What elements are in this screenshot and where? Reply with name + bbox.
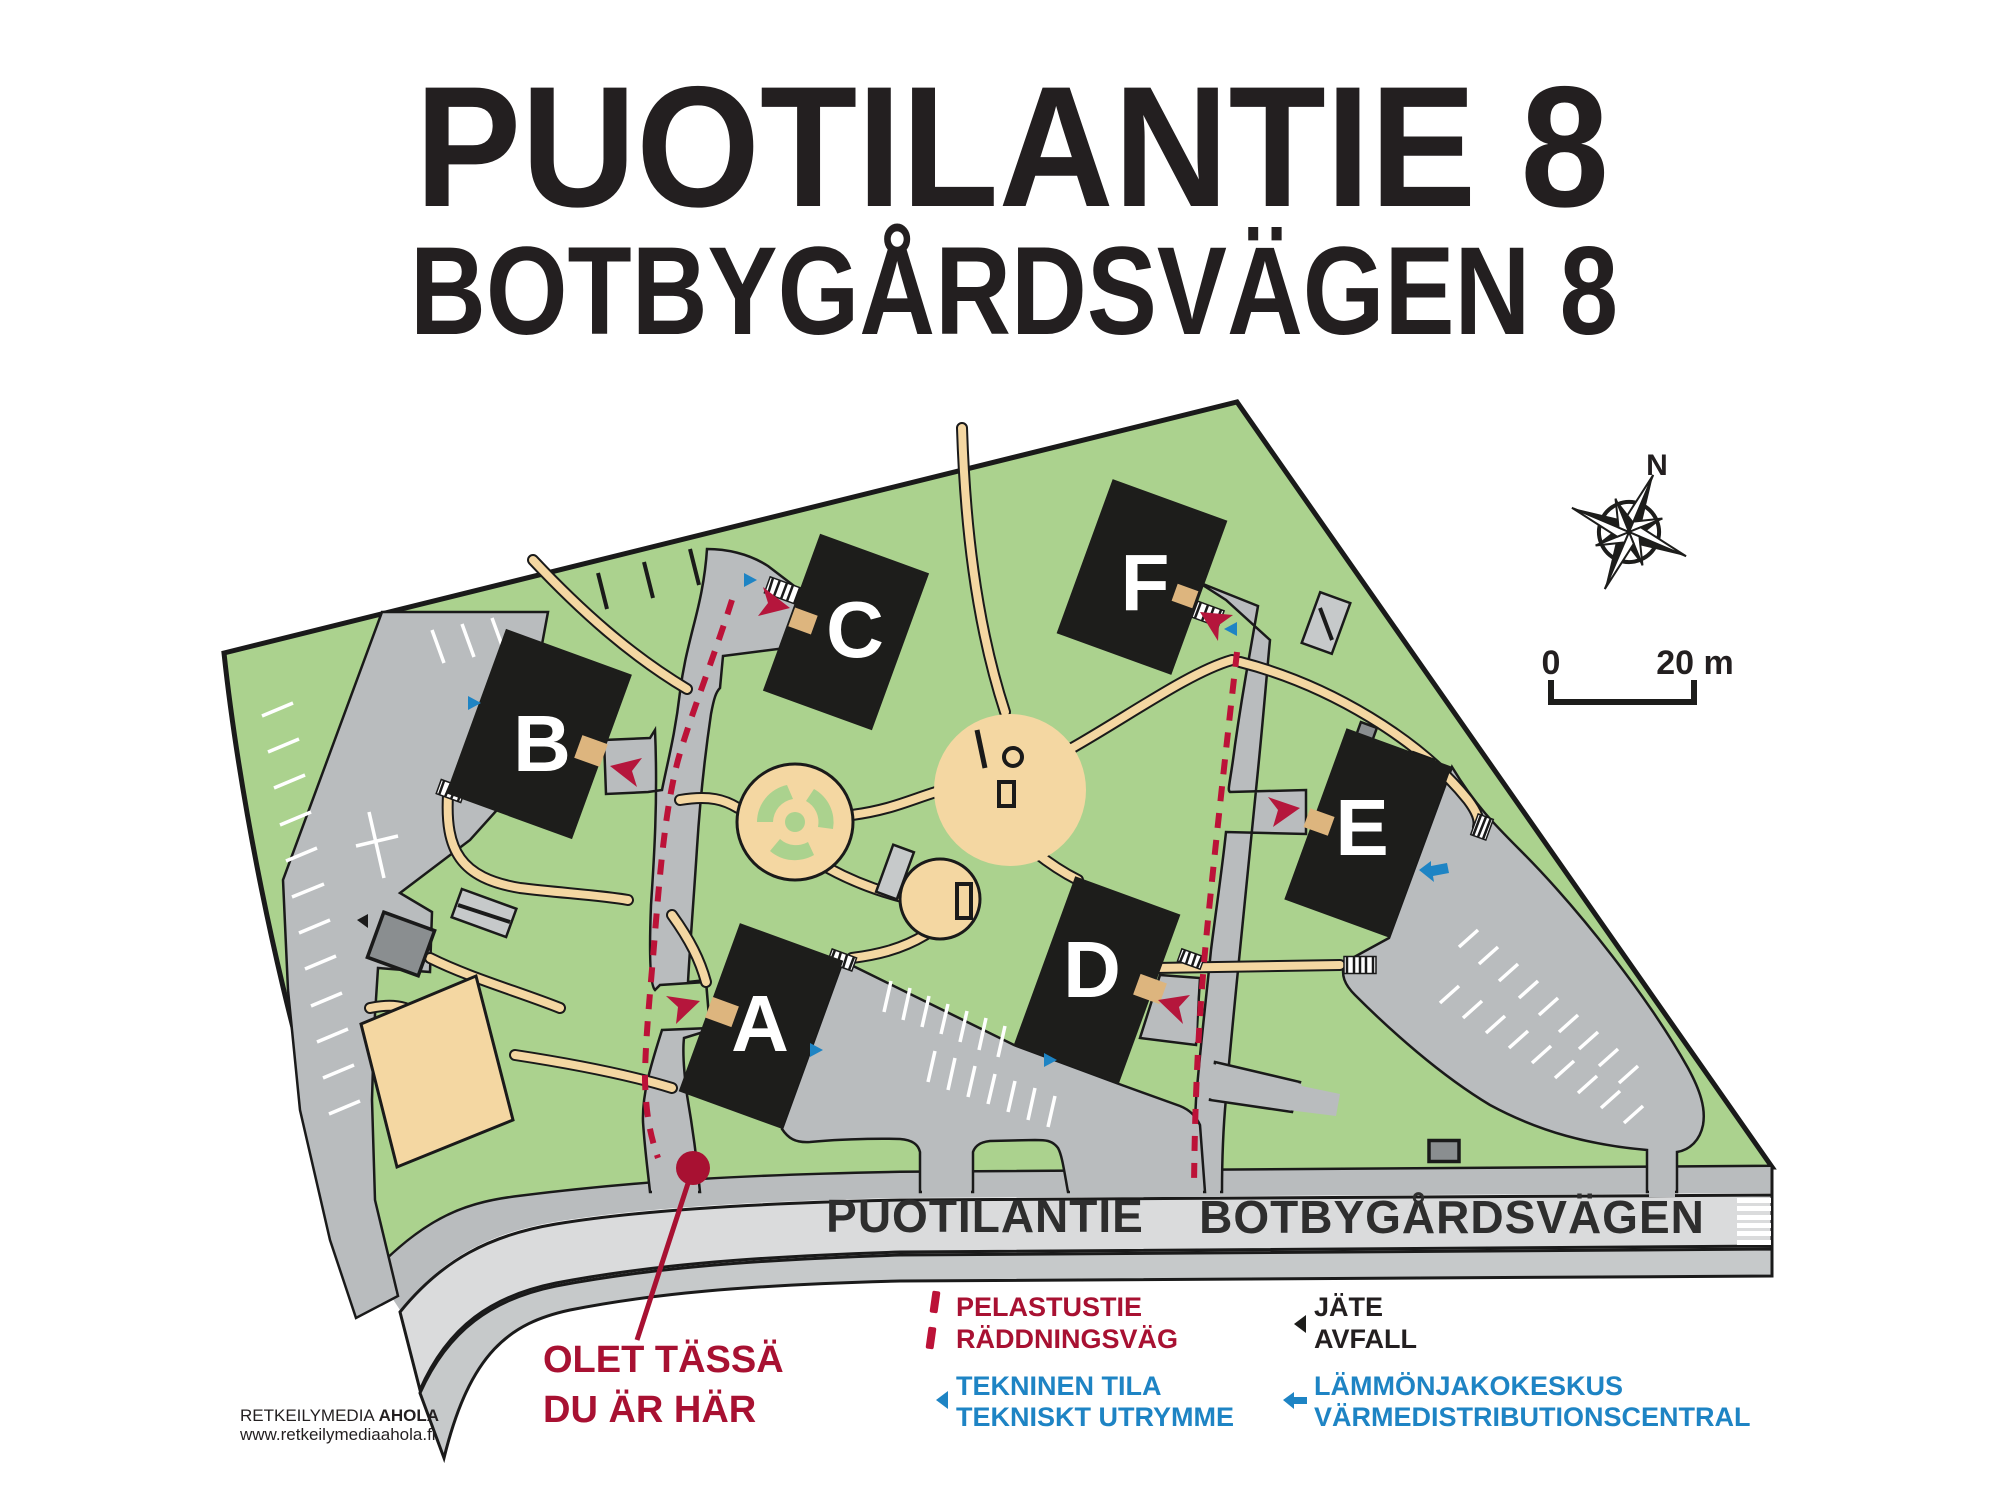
- svg-text:TEKNINEN TILA: TEKNINEN TILA: [956, 1371, 1162, 1401]
- svg-text:PUOTILANTIE: PUOTILANTIE: [826, 1190, 1144, 1242]
- svg-text:A: A: [731, 979, 789, 1068]
- svg-text:D: D: [1063, 925, 1121, 1014]
- svg-text:VÄRMEDISTRIBUTIONSCENTRAL: VÄRMEDISTRIBUTIONSCENTRAL: [1314, 1402, 1751, 1432]
- svg-text:LÄMMÖNJAKOKESKUS: LÄMMÖNJAKOKESKUS: [1314, 1371, 1623, 1401]
- svg-text:AVFALL: AVFALL: [1314, 1324, 1417, 1354]
- svg-text:N: N: [1646, 449, 1668, 482]
- svg-text:BOTBYGÅRDSVÄGEN 8: BOTBYGÅRDSVÄGEN 8: [410, 222, 1618, 361]
- svg-text:20 m: 20 m: [1656, 644, 1734, 682]
- svg-text:C: C: [826, 585, 884, 674]
- svg-text:DU ÄR HÄR: DU ÄR HÄR: [543, 1388, 756, 1431]
- svg-text:BOTBYGÅRDSVÄGEN: BOTBYGÅRDSVÄGEN: [1199, 1191, 1705, 1243]
- svg-text:E: E: [1335, 783, 1388, 872]
- svg-text:OLET TÄSSÄ: OLET TÄSSÄ: [543, 1338, 784, 1381]
- svg-text:TEKNISKT UTRYMME: TEKNISKT UTRYMME: [956, 1402, 1234, 1432]
- svg-text:PUOTILANTIE 8: PUOTILANTIE 8: [415, 51, 1609, 243]
- svg-text:B: B: [513, 699, 571, 788]
- svg-text:0: 0: [1542, 644, 1561, 682]
- svg-text:RÄDDNINGSVÄG: RÄDDNINGSVÄG: [956, 1324, 1178, 1354]
- svg-text:www.retkeilymediaahola.fi: www.retkeilymediaahola.fi: [239, 1425, 436, 1444]
- svg-text:RETKEILYMEDIA AHOLA: RETKEILYMEDIA AHOLA: [240, 1406, 439, 1425]
- svg-text:JÄTE: JÄTE: [1314, 1292, 1383, 1322]
- svg-text:F: F: [1121, 538, 1170, 627]
- svg-text:PELASTUSTIE: PELASTUSTIE: [956, 1292, 1142, 1322]
